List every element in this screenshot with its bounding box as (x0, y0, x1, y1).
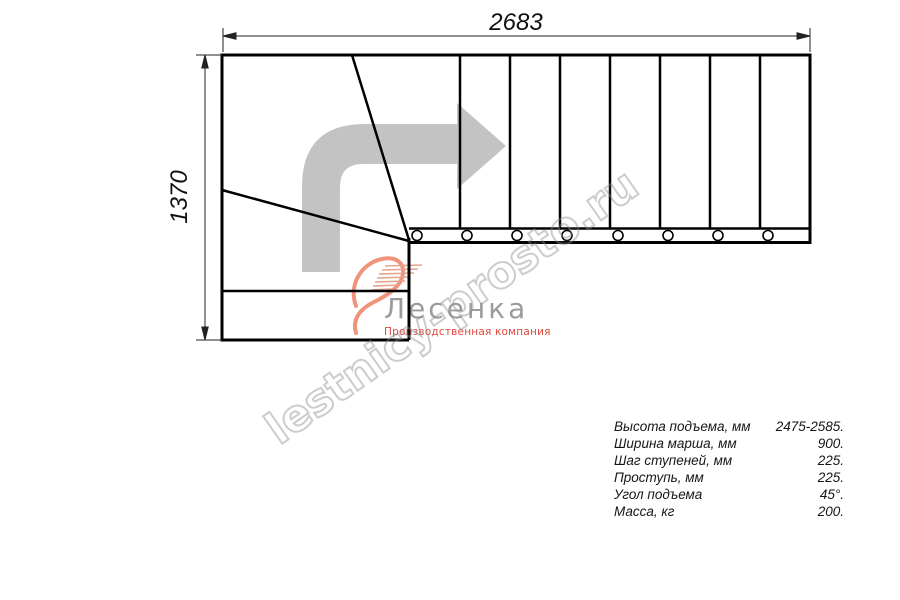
baluster-circles (412, 231, 773, 241)
spec-row-flight-width: Ширина марша, мм 900. (614, 435, 844, 452)
spec-value: 225. (818, 469, 844, 486)
top-dimension-value: 2683 (488, 9, 543, 36)
spec-label: Угол подъема (614, 486, 702, 503)
tread-lines (460, 55, 760, 228)
dim-arrow-right (797, 33, 810, 39)
spec-value: 900. (818, 435, 844, 452)
spec-row-height: Высота подъема, мм 2475-2585. (614, 418, 844, 435)
dim-arrow-top (202, 55, 208, 68)
spec-label: Высота подъема, мм (614, 418, 750, 435)
spec-row-step-pitch: Шаг ступеней, мм 225. (614, 452, 844, 469)
spec-row-tread-depth: Проступь, мм 225. (614, 469, 844, 486)
specs-table: Высота подъема, мм 2475-2585. Ширина мар… (614, 418, 844, 520)
left-dimension-value: 1370 (166, 170, 193, 224)
dim-arrow-left (223, 33, 236, 39)
dim-arrow-bottom (202, 327, 208, 340)
spec-row-climb-angle: Угол подъема 45°. (614, 486, 844, 503)
top-dimension: 2683 (223, 9, 810, 52)
spec-label: Масса, кг (614, 503, 674, 520)
spec-label: Ширина марша, мм (614, 435, 737, 452)
spec-value: 225. (818, 452, 844, 469)
spec-value: 2475-2585. (776, 418, 844, 435)
left-dimension: 1370 (166, 55, 222, 340)
spec-value: 200. (818, 503, 844, 520)
spec-value: 45°. (820, 486, 844, 503)
logo-swoosh-icon (354, 258, 422, 333)
spec-row-mass: Масса, кг 200. (614, 503, 844, 520)
spec-label: Проступь, мм (614, 469, 704, 486)
direction-arrow-icon (302, 103, 506, 272)
staircase-drawing-page: Лесенка Производственная компания (0, 0, 900, 600)
spec-label: Шаг ступеней, мм (614, 452, 732, 469)
